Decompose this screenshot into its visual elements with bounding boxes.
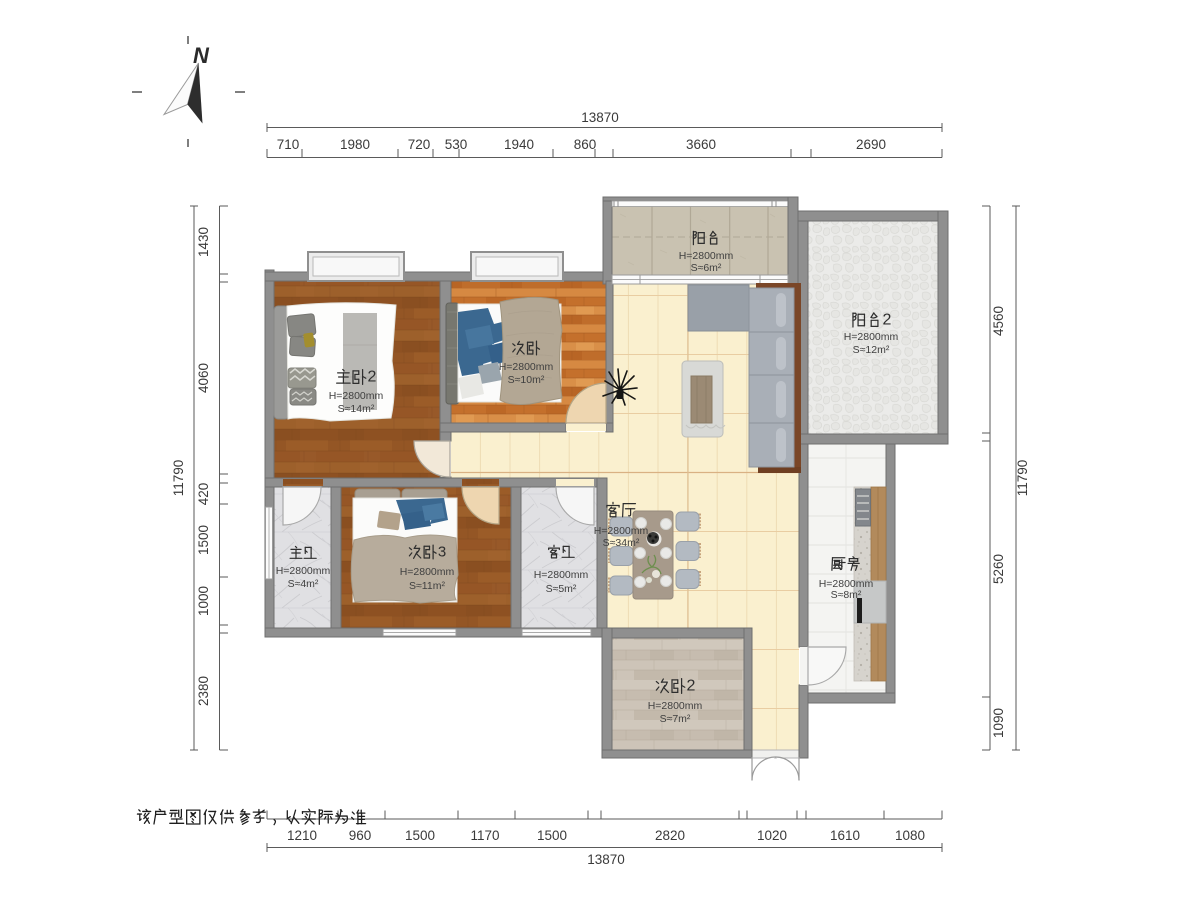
svg-text:1000: 1000	[196, 586, 211, 616]
svg-text:S≈11m²: S≈11m²	[409, 580, 445, 592]
svg-text:H=2800mm: H=2800mm	[400, 566, 455, 578]
svg-text:S≈8m²: S≈8m²	[831, 589, 862, 601]
svg-text:1500: 1500	[405, 828, 435, 843]
svg-text:1020: 1020	[757, 828, 787, 843]
svg-text:1980: 1980	[340, 137, 370, 152]
svg-text:S≈14m²: S≈14m²	[338, 403, 375, 415]
svg-text:1210: 1210	[287, 828, 317, 843]
svg-text:710: 710	[277, 137, 300, 152]
svg-text:1090: 1090	[991, 708, 1006, 738]
svg-text:H=2800mm: H=2800mm	[594, 525, 649, 537]
svg-text:N: N	[193, 43, 210, 68]
svg-text:2: 2	[883, 312, 892, 329]
svg-text:11790: 11790	[171, 460, 186, 497]
svg-text:H=2800mm: H=2800mm	[679, 250, 734, 262]
svg-text:1170: 1170	[470, 828, 499, 843]
svg-text:2820: 2820	[655, 828, 685, 843]
svg-text:1610: 1610	[830, 828, 860, 843]
svg-text:2380: 2380	[196, 676, 211, 706]
svg-text:H=2800mm: H=2800mm	[534, 569, 589, 581]
svg-text:5260: 5260	[991, 554, 1006, 584]
svg-text:13870: 13870	[581, 110, 619, 125]
svg-text:860: 860	[574, 137, 597, 152]
svg-text:S≈10m²: S≈10m²	[508, 374, 545, 386]
svg-text:11790: 11790	[1015, 460, 1030, 497]
svg-text:1500: 1500	[537, 828, 567, 843]
svg-text:4560: 4560	[991, 306, 1006, 336]
svg-text:H=2800mm: H=2800mm	[276, 565, 331, 577]
svg-text:H=2800mm: H=2800mm	[648, 700, 703, 712]
svg-text:3: 3	[438, 544, 446, 561]
svg-text:13870: 13870	[587, 852, 625, 867]
svg-text:H=2800mm: H=2800mm	[844, 331, 899, 343]
svg-text:2: 2	[687, 678, 696, 695]
svg-text:S≈6m²: S≈6m²	[691, 262, 722, 274]
svg-text:420: 420	[196, 483, 211, 506]
svg-text:S≈4m²: S≈4m²	[288, 578, 319, 590]
svg-text:1940: 1940	[504, 137, 534, 152]
svg-text:S≈12m²: S≈12m²	[853, 344, 890, 356]
svg-text:1500: 1500	[196, 525, 211, 555]
svg-text:1080: 1080	[895, 828, 925, 843]
svg-text:1430: 1430	[196, 227, 211, 257]
svg-text:S≈7m²: S≈7m²	[660, 713, 691, 725]
svg-text:960: 960	[349, 828, 372, 843]
svg-text:H=2800mm: H=2800mm	[499, 361, 554, 373]
svg-text:3660: 3660	[686, 137, 716, 152]
svg-text:H=2800mm: H=2800mm	[329, 390, 384, 402]
svg-text:4060: 4060	[196, 363, 211, 393]
svg-text:530: 530	[445, 137, 468, 152]
svg-text:720: 720	[408, 137, 431, 152]
svg-text:S≈5m²: S≈5m²	[546, 583, 577, 595]
svg-text:2690: 2690	[856, 137, 886, 152]
svg-text:2: 2	[368, 369, 377, 386]
svg-text:S≈34m²: S≈34m²	[603, 537, 640, 549]
